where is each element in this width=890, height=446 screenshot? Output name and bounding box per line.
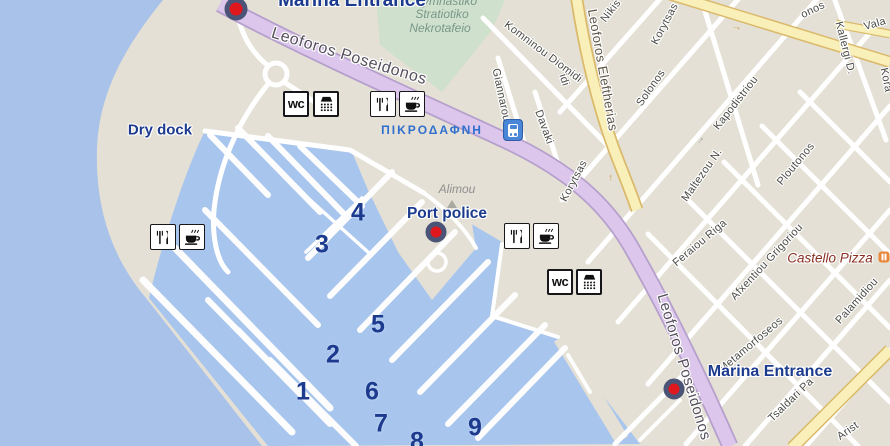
berth-number-4: 4 [351, 199, 365, 228]
coffee-icon [399, 91, 425, 117]
port-police-label: Port police [407, 205, 487, 223]
dry-dock-label: Dry dock [128, 122, 192, 139]
restaurant-icon [370, 91, 396, 117]
castello-pizza-label: Castello Pizza [787, 251, 873, 266]
tram-icon [508, 124, 518, 137]
wc-icon: wc [283, 91, 309, 117]
berth-number-5: 5 [371, 311, 385, 340]
coffee-icon [533, 223, 559, 249]
pikrodafni-station-label: ΠΙΚΡΟΔΑΦΝΗ [381, 123, 483, 137]
marina-entrance-bottom-label: Marina Entrance [708, 363, 832, 381]
marina-entrance-bottom-marker[interactable] [664, 379, 685, 400]
berth-number-1: 1 [296, 378, 310, 407]
shower-icon [576, 269, 602, 295]
berth-number-9: 9 [468, 414, 482, 443]
one-way-arrow-icon: → [604, 173, 616, 184]
port-police-marker[interactable] [426, 222, 447, 243]
berth-number-6: 6 [365, 378, 379, 407]
berth-number-2: 2 [326, 341, 340, 370]
restaurant-icon [504, 223, 530, 249]
pikrodafni-station-icon[interactable] [503, 119, 523, 141]
shower-icon [313, 91, 339, 117]
alimou-label: Alimou [439, 182, 476, 196]
coffee-icon [179, 224, 205, 250]
cemetery-label-line3: Nekrotafeio [409, 21, 470, 35]
berth-number-3: 3 [315, 231, 329, 260]
marina-entrance-top-label: Marina Entrance [278, 0, 426, 12]
restaurant-poi-icon[interactable] [879, 252, 890, 263]
restaurant-icon [150, 224, 176, 250]
berth-number-7: 7 [374, 410, 388, 439]
berth-number-8: 8 [410, 428, 424, 446]
wc-icon: wc [547, 269, 573, 295]
marina-map[interactable]: Leoforos Poseidonos Leoforos Poseidonos … [0, 0, 890, 446]
